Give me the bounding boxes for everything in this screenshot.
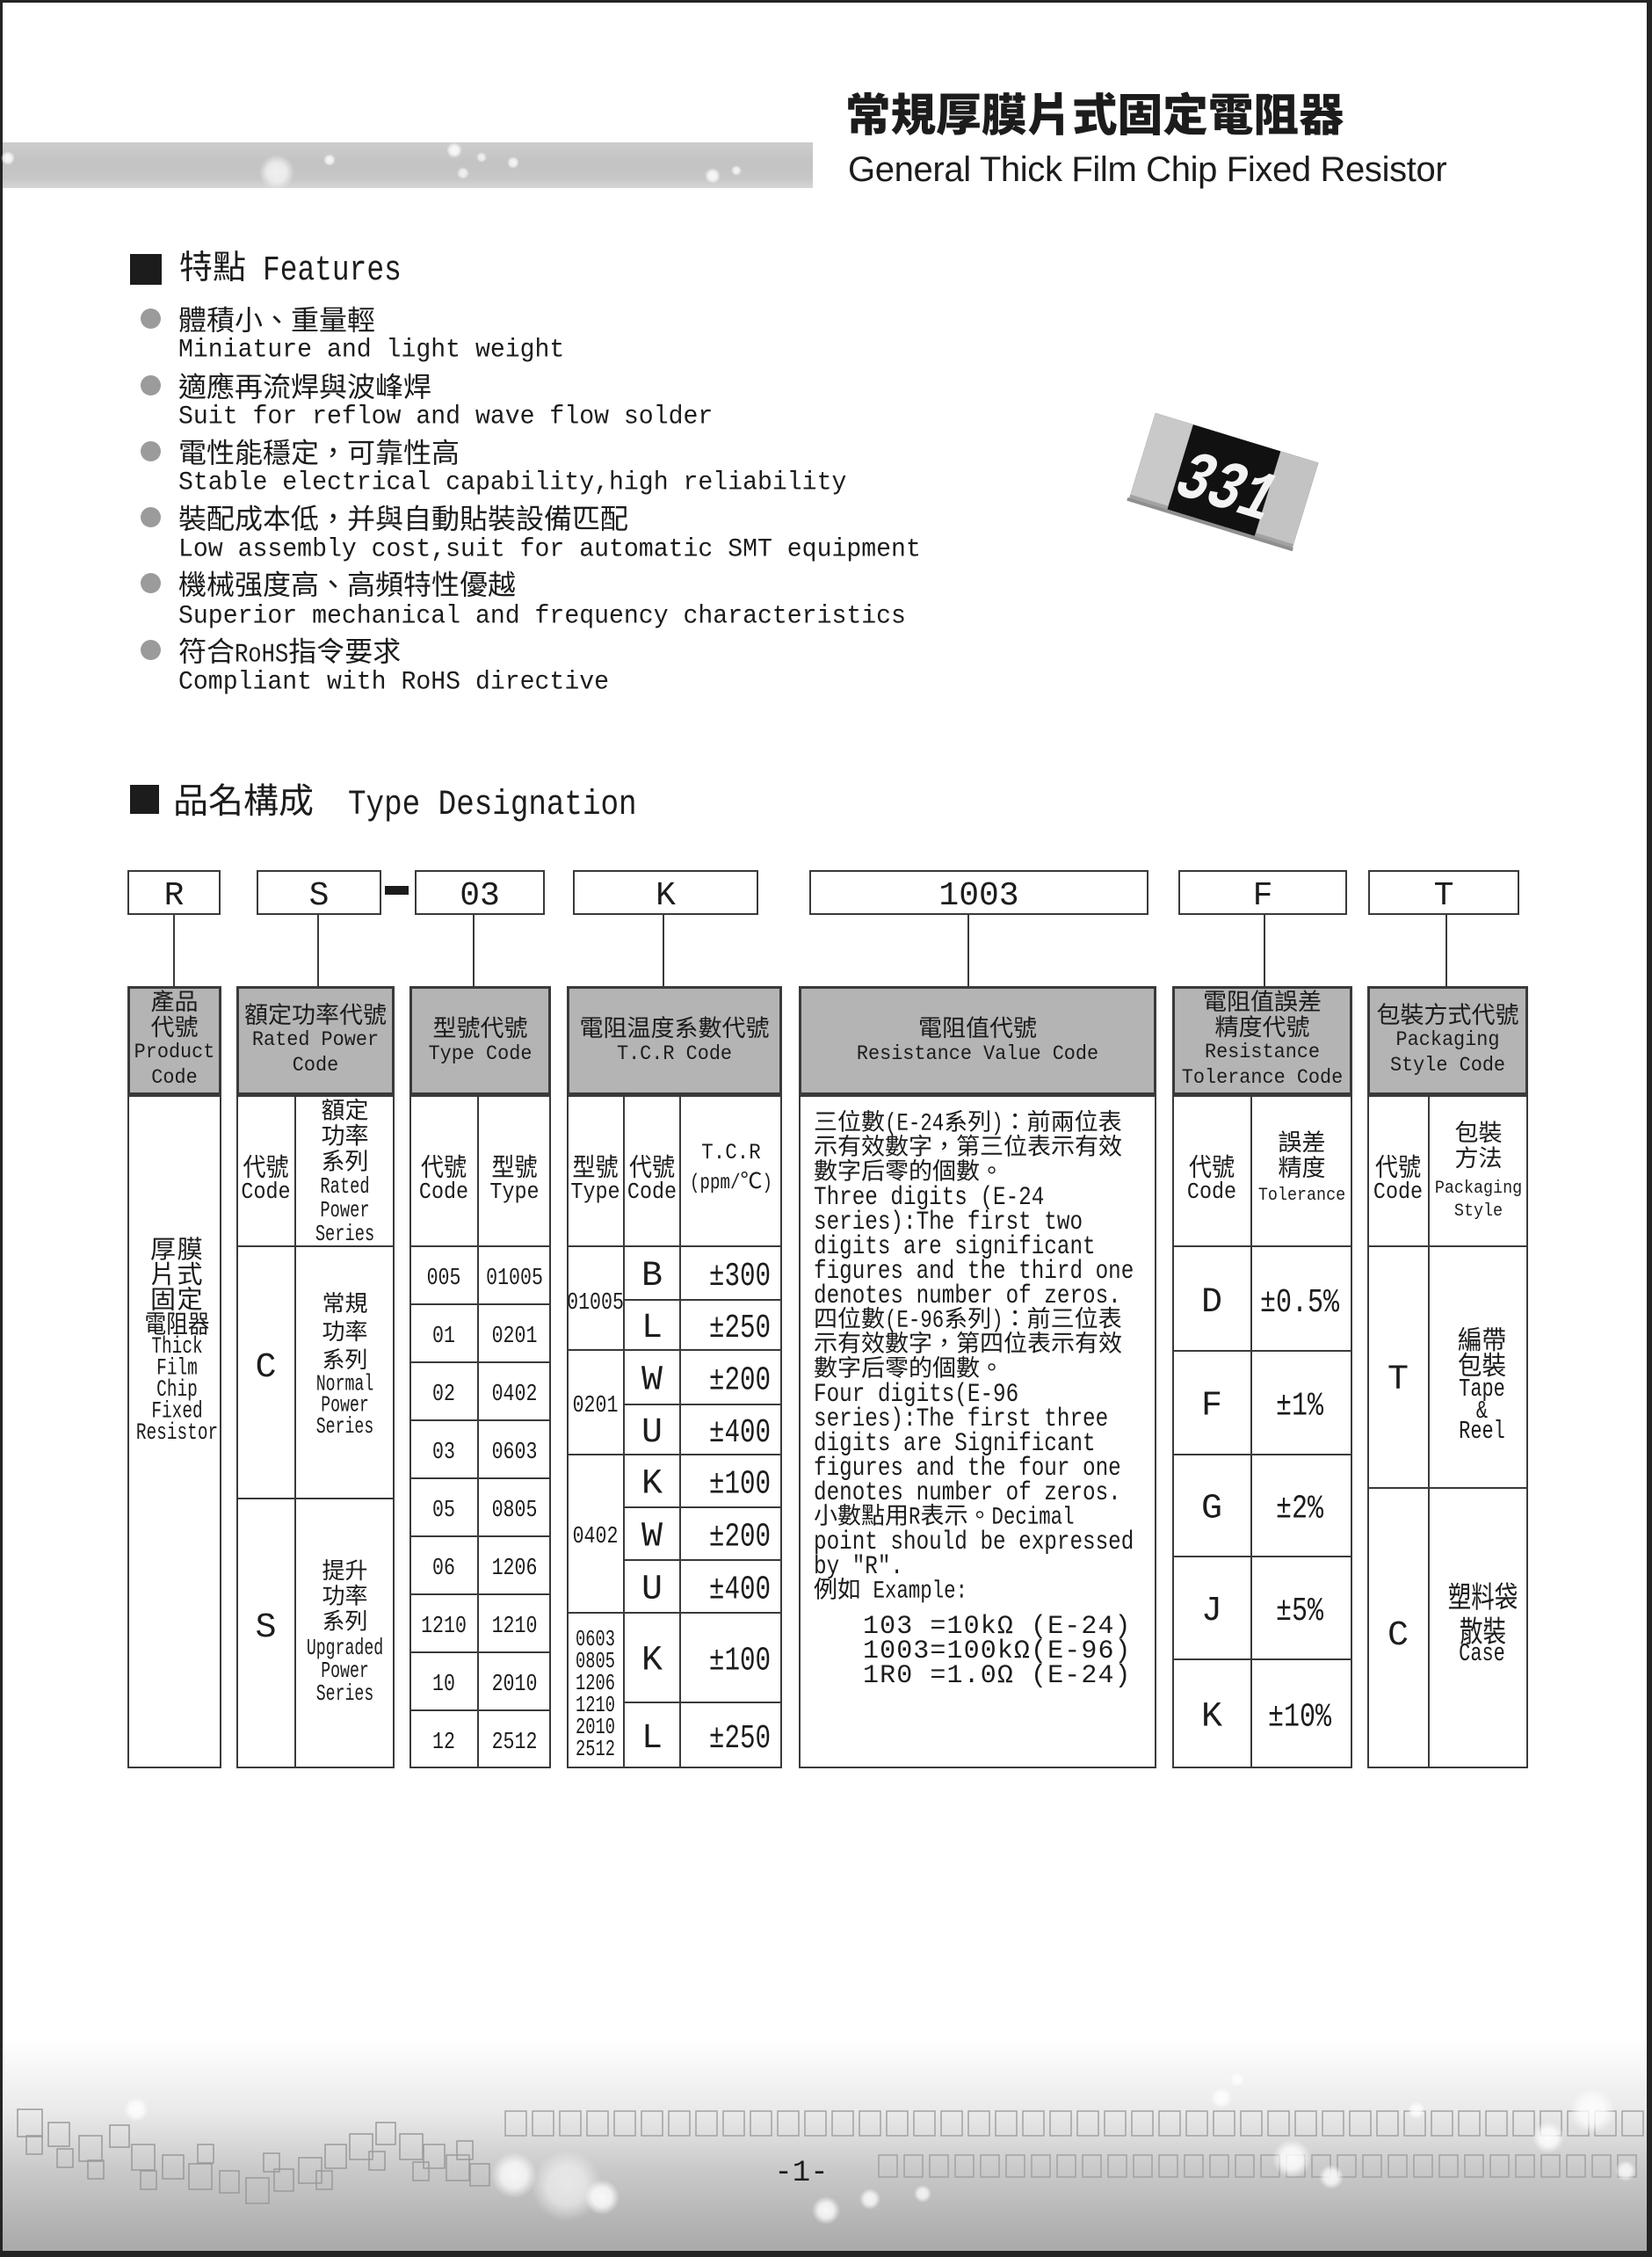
svg-text:005: 005 [427, 1266, 461, 1292]
svg-text:12: 12 [432, 1730, 455, 1756]
svg-text:0201: 0201 [573, 1393, 619, 1419]
svg-text:1003: 1003 [938, 877, 1018, 915]
svg-text:Rated Power: Rated Power [252, 1028, 379, 1052]
svg-text:Resistor: Resistor [136, 1419, 218, 1447]
svg-text:Type: Type [570, 1179, 619, 1205]
svg-text:05: 05 [432, 1498, 455, 1524]
svg-text:U: U [641, 1413, 663, 1453]
svg-text:10: 10 [432, 1672, 455, 1698]
svg-text:±400: ±400 [709, 1415, 771, 1453]
svg-text:Reel: Reel [1459, 1417, 1505, 1445]
svg-text:C: C [1388, 1616, 1409, 1656]
svg-text:C: C [255, 1348, 276, 1388]
svg-text:B: B [641, 1257, 663, 1296]
svg-text:J: J [1201, 1592, 1222, 1631]
svg-text:±0.5%: ±0.5% [1260, 1284, 1339, 1322]
svg-text:±1%: ±1% [1276, 1387, 1323, 1425]
svg-text:Style Code: Style Code [1390, 1054, 1505, 1078]
svg-text:0603: 0603 [492, 1440, 538, 1466]
svg-text:Code: Code [151, 1066, 197, 1090]
svg-text:2512: 2512 [576, 1736, 615, 1762]
svg-text:Type Designation: Type Designation [348, 786, 637, 825]
svg-text:Series: Series [316, 1680, 374, 1707]
svg-text:±300: ±300 [709, 1259, 771, 1296]
svg-text:Packaging: Packaging [1435, 1178, 1522, 1198]
svg-text:Code: Code [241, 1179, 290, 1205]
svg-text:D: D [1201, 1283, 1222, 1323]
svg-text:1210: 1210 [492, 1614, 538, 1640]
svg-text:1R0 =1.0Ω (E-24): 1R0 =1.0Ω (E-24) [863, 1661, 1132, 1691]
svg-text:U: U [641, 1571, 663, 1610]
svg-text:0402: 0402 [573, 1524, 619, 1550]
svg-text:03: 03 [432, 1440, 455, 1466]
svg-text:±200: ±200 [709, 1519, 771, 1557]
svg-text:Power: Power [320, 1197, 369, 1223]
svg-text:Type: Type [489, 1179, 539, 1205]
svg-text:01005: 01005 [486, 1266, 543, 1292]
svg-text:Code: Code [1373, 1179, 1423, 1205]
svg-text:General Thick Film Chip Fixed: General Thick Film Chip Fixed Resistor [848, 150, 1446, 189]
svg-text:01: 01 [432, 1324, 455, 1350]
svg-text:03: 03 [460, 877, 500, 915]
svg-text:±100: ±100 [709, 1466, 771, 1504]
svg-text:denotes number of zeros.: denotes number of zeros. [814, 1281, 1121, 1311]
svg-text:±2%: ±2% [1276, 1490, 1323, 1528]
svg-text:S: S [309, 877, 330, 915]
svg-text:S: S [255, 1608, 276, 1648]
svg-text:K: K [1201, 1698, 1222, 1738]
svg-text:Series: Series [316, 1413, 374, 1440]
svg-text:±250: ±250 [709, 1310, 771, 1348]
svg-text:T: T [1388, 1361, 1409, 1400]
svg-text:Style: Style [1454, 1201, 1503, 1221]
svg-text:Stable electrical capability,h: Stable electrical capability,high reliab… [178, 468, 846, 497]
svg-text:Code: Code [293, 1054, 338, 1078]
svg-text:±100: ±100 [709, 1643, 771, 1680]
svg-text:K: K [641, 1465, 663, 1505]
svg-text:1210: 1210 [421, 1614, 467, 1640]
svg-text:±200: ±200 [709, 1362, 771, 1400]
svg-text:Superior mechanical and freque: Superior mechanical and frequency charac… [178, 601, 906, 631]
svg-text:F: F [1253, 877, 1273, 915]
svg-text:Type Code: Type Code [429, 1042, 533, 1066]
svg-text:Code: Code [627, 1179, 677, 1205]
svg-text:Tolerance Code: Tolerance Code [1182, 1066, 1343, 1090]
svg-text:0402: 0402 [492, 1382, 538, 1408]
svg-text:±400: ±400 [709, 1571, 771, 1609]
svg-text:01005: 01005 [567, 1290, 624, 1317]
svg-text:Resistance Value Code: Resistance Value Code [857, 1042, 1098, 1066]
svg-text:Series: Series [315, 1221, 374, 1247]
svg-text:K: K [656, 877, 676, 915]
svg-text:0805: 0805 [492, 1498, 538, 1524]
svg-text:±5%: ±5% [1276, 1593, 1323, 1630]
svg-text:T.C.R: T.C.R [701, 1141, 760, 1165]
svg-text:2010: 2010 [492, 1672, 538, 1698]
svg-text:2512: 2512 [492, 1730, 538, 1756]
svg-text:T.C.R Code: T.C.R Code [617, 1042, 732, 1066]
svg-text:Resistance: Resistance [1205, 1041, 1320, 1064]
svg-text:F: F [1201, 1387, 1222, 1426]
svg-text:Tolerance: Tolerance [1258, 1185, 1345, 1205]
svg-text:W: W [641, 1518, 663, 1557]
svg-text:06: 06 [432, 1556, 455, 1582]
svg-text:Code: Code [419, 1179, 468, 1205]
svg-text:0201: 0201 [492, 1324, 538, 1350]
svg-text:Product: Product [134, 1041, 215, 1064]
svg-text:R: R [164, 877, 185, 915]
svg-text:Code: Code [1187, 1179, 1236, 1205]
svg-text:Miniature and light weight: Miniature and light weight [178, 335, 564, 365]
svg-text:Features: Features [263, 250, 402, 290]
svg-text:Case: Case [1459, 1639, 1505, 1667]
svg-text:Rated: Rated [320, 1173, 369, 1200]
svg-text:L: L [641, 1719, 663, 1759]
svg-text:G: G [1201, 1490, 1222, 1529]
svg-text:by "R".: by "R". [814, 1552, 903, 1582]
svg-text:W: W [641, 1361, 663, 1401]
svg-text:-1-: -1- [774, 2157, 828, 2190]
svg-text:T: T [1434, 877, 1454, 915]
svg-text:02: 02 [432, 1382, 455, 1408]
svg-text:Compliant with RoHS directive: Compliant with RoHS directive [178, 667, 609, 697]
svg-text:±250: ±250 [709, 1721, 771, 1759]
svg-text:K: K [641, 1642, 663, 1681]
svg-text:Suit for reflow and wave flow: Suit for reflow and wave flow solder [178, 402, 713, 432]
svg-text:Packaging: Packaging [1396, 1028, 1500, 1052]
svg-text:Low assembly cost,suit for aut: Low assembly cost,suit for automatic SMT… [178, 534, 921, 564]
svg-text:denotes number of zeros.: denotes number of zeros. [814, 1478, 1121, 1508]
svg-text:±10%: ±10% [1268, 1698, 1331, 1736]
svg-text:1206: 1206 [492, 1556, 538, 1582]
svg-text:L: L [641, 1309, 663, 1348]
